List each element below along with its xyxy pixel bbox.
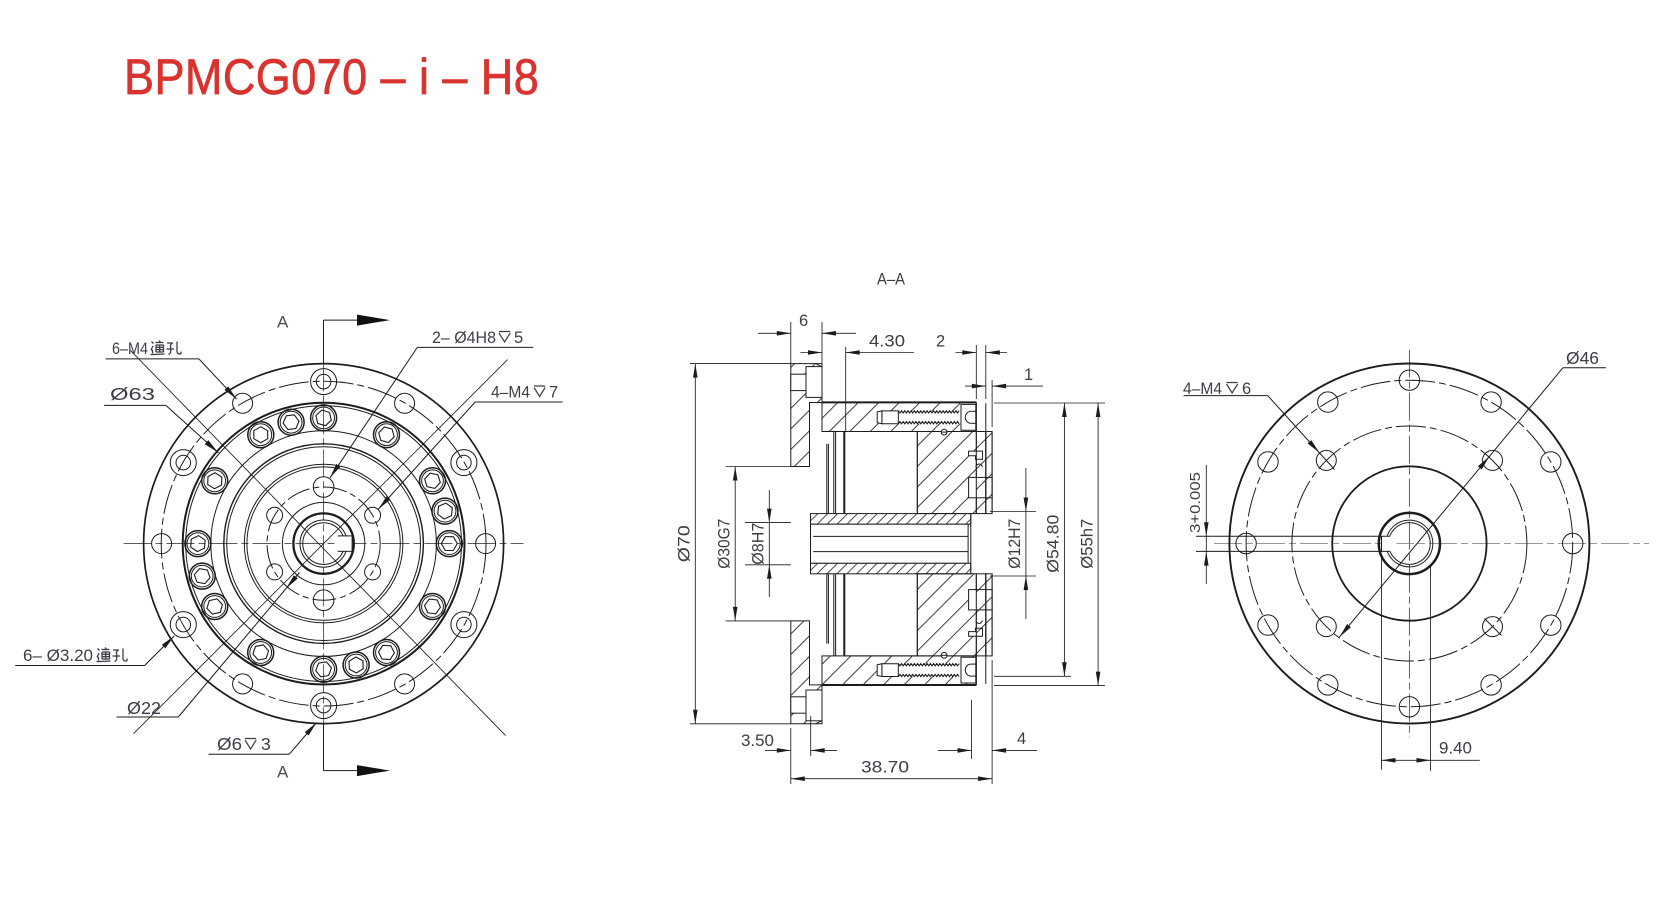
svg-text:BPMCG070 – i – H8: BPMCG070 – i – H8 <box>124 50 539 106</box>
svg-text:9.40: 9.40 <box>1439 740 1472 758</box>
svg-text:A: A <box>277 763 289 782</box>
svg-text:Ø63: Ø63 <box>110 384 155 404</box>
svg-text:1: 1 <box>1024 366 1033 384</box>
svg-text:38.70: 38.70 <box>861 759 909 777</box>
svg-text:A: A <box>277 313 289 332</box>
svg-text:3+0.005: 3+0.005 <box>1188 472 1204 533</box>
svg-text:7: 7 <box>549 384 558 402</box>
svg-text:6–M4: 6–M4 <box>112 340 148 358</box>
svg-text:Ø12H7: Ø12H7 <box>1006 519 1024 569</box>
svg-text:5: 5 <box>514 329 523 347</box>
svg-text:3: 3 <box>261 734 271 754</box>
svg-text:2– Ø4H8: 2– Ø4H8 <box>432 329 496 347</box>
svg-text:Ø70: Ø70 <box>675 525 694 562</box>
svg-text:4: 4 <box>1017 730 1026 748</box>
svg-text:4–M4: 4–M4 <box>491 384 530 402</box>
svg-text:Ø30G7: Ø30G7 <box>716 519 734 569</box>
svg-text:6: 6 <box>799 312 808 330</box>
svg-text:3.50: 3.50 <box>741 732 774 750</box>
svg-text:Ø22: Ø22 <box>127 698 161 718</box>
svg-text:Ø46: Ø46 <box>1566 348 1599 368</box>
svg-text:2: 2 <box>936 333 945 351</box>
svg-text:4.30: 4.30 <box>869 333 905 351</box>
svg-text:A–A: A–A <box>877 270 906 289</box>
svg-text:6– Ø3.20: 6– Ø3.20 <box>23 647 93 665</box>
svg-text:Ø55h7: Ø55h7 <box>1079 519 1097 569</box>
svg-text:Ø8H7: Ø8H7 <box>750 523 768 565</box>
svg-text:Ø6: Ø6 <box>217 734 242 754</box>
svg-text:Ø54.80: Ø54.80 <box>1045 515 1063 573</box>
